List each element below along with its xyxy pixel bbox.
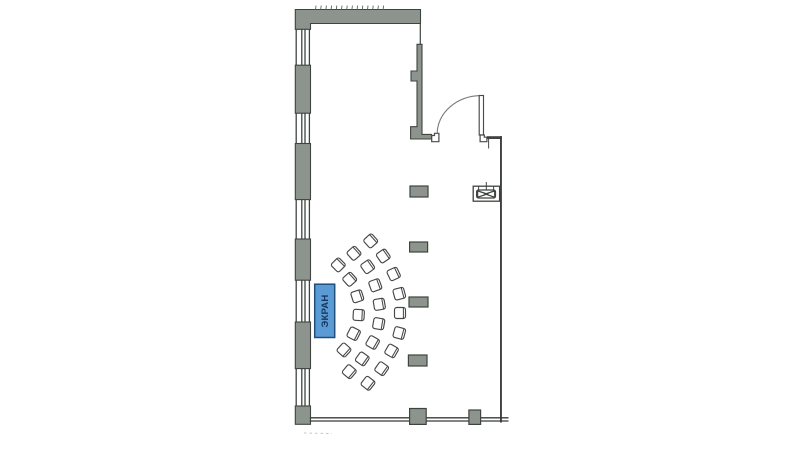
svg-text:ЭКРАН: ЭКРАН: [320, 294, 331, 327]
